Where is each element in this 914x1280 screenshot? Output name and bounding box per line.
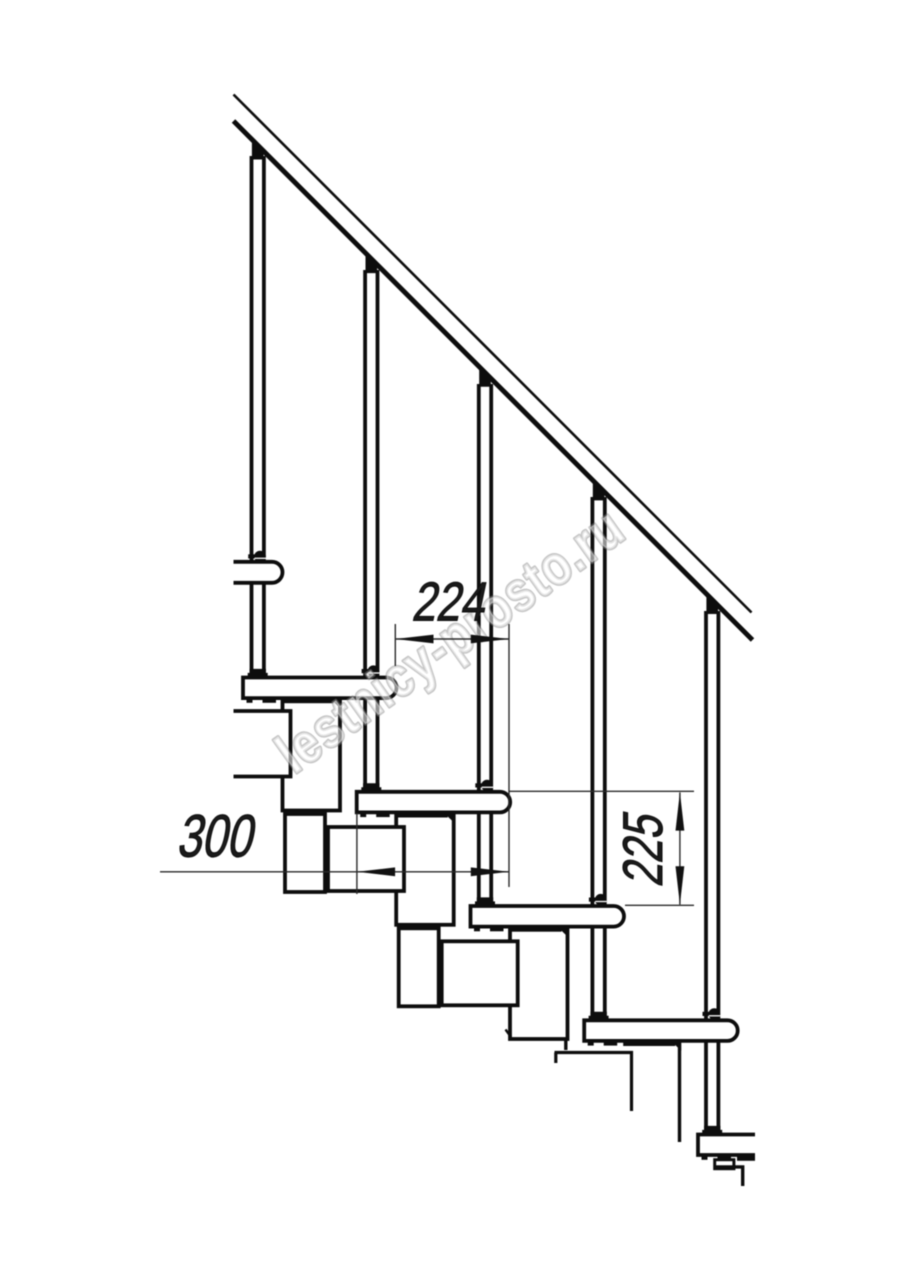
svg-text:224: 224 <box>408 571 494 632</box>
svg-text:300: 300 <box>173 803 262 870</box>
svg-text:lestnicy-prosto.ru: lestnicy-prosto.ru <box>265 496 636 785</box>
svg-text:225: 225 <box>611 806 674 890</box>
